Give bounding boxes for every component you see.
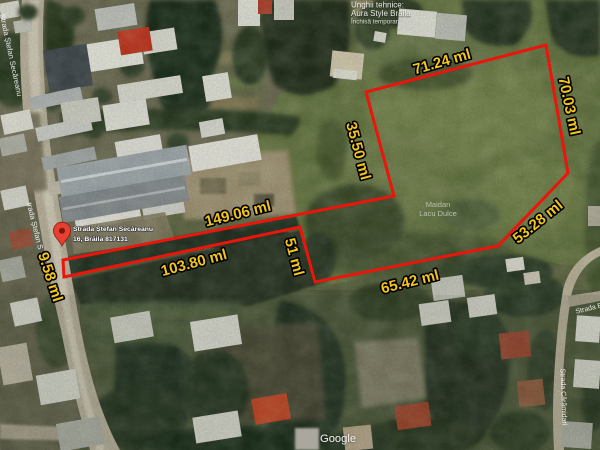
svg-text:Aura Style Brăila: Aura Style Brăila bbox=[351, 9, 411, 18]
svg-text:Închisă temporar: Închisă temporar bbox=[350, 17, 398, 26]
svg-text:Lacu Dulce: Lacu Dulce bbox=[419, 209, 457, 218]
svg-text:16, Brăila 817131: 16, Brăila 817131 bbox=[73, 236, 128, 243]
svg-text:Maidan: Maidan bbox=[426, 200, 451, 209]
svg-text:Strada Ștefan Secăreanu: Strada Ștefan Secăreanu bbox=[73, 226, 153, 233]
svg-text:Google: Google bbox=[320, 433, 356, 445]
